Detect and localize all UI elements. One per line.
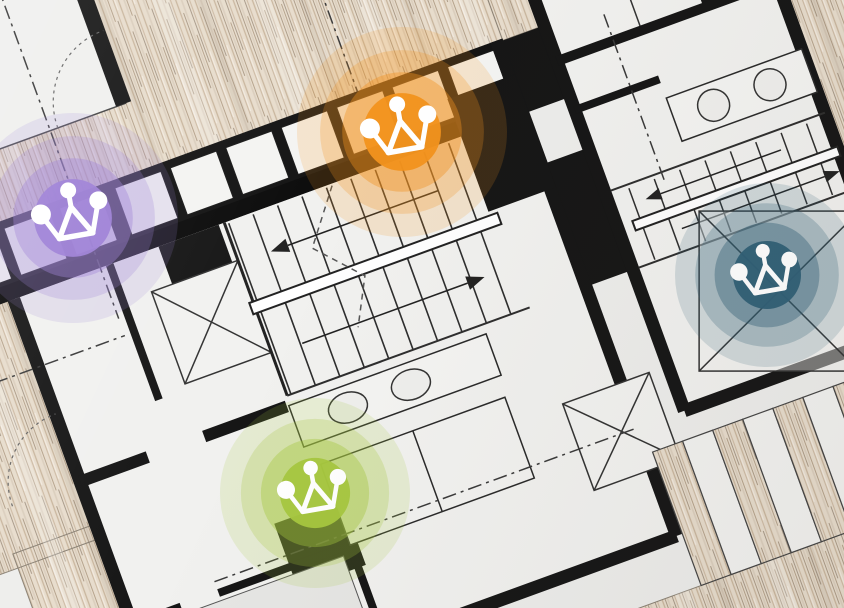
- sensor-marker-purple[interactable]: [0, 103, 188, 333]
- sensor-marker-orange[interactable]: [287, 17, 517, 247]
- sensor-marker-teal[interactable]: [665, 173, 844, 377]
- sensor-marker-green[interactable]: [210, 388, 420, 598]
- floorplan-scene: [0, 0, 844, 608]
